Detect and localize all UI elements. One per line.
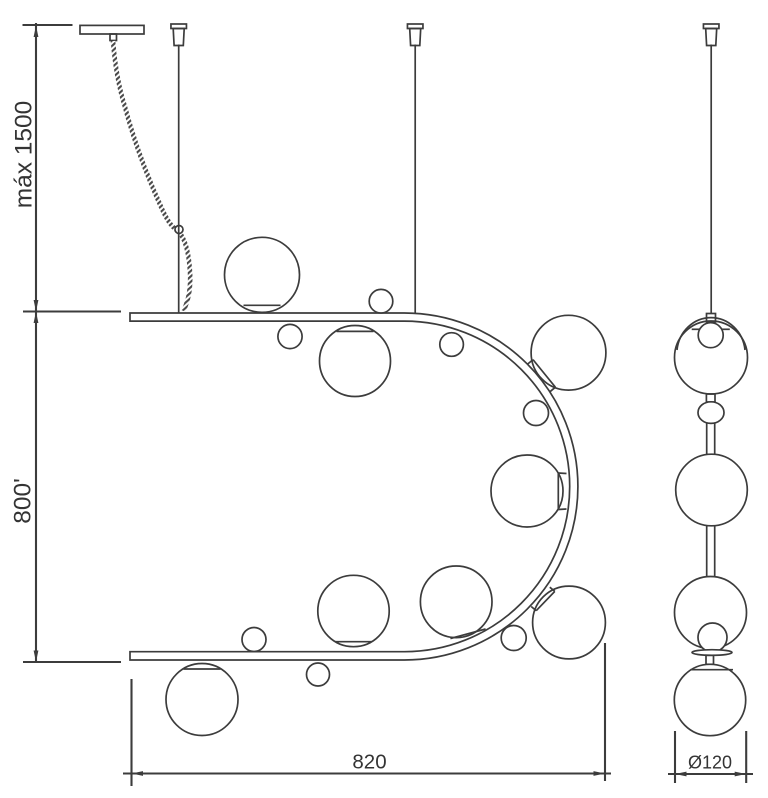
svg-text:máx 1500: máx 1500 [11,101,38,209]
svg-text:820: 820 [352,751,386,774]
svg-text:800': 800' [10,478,37,524]
svg-text:Ø120: Ø120 [688,753,732,773]
